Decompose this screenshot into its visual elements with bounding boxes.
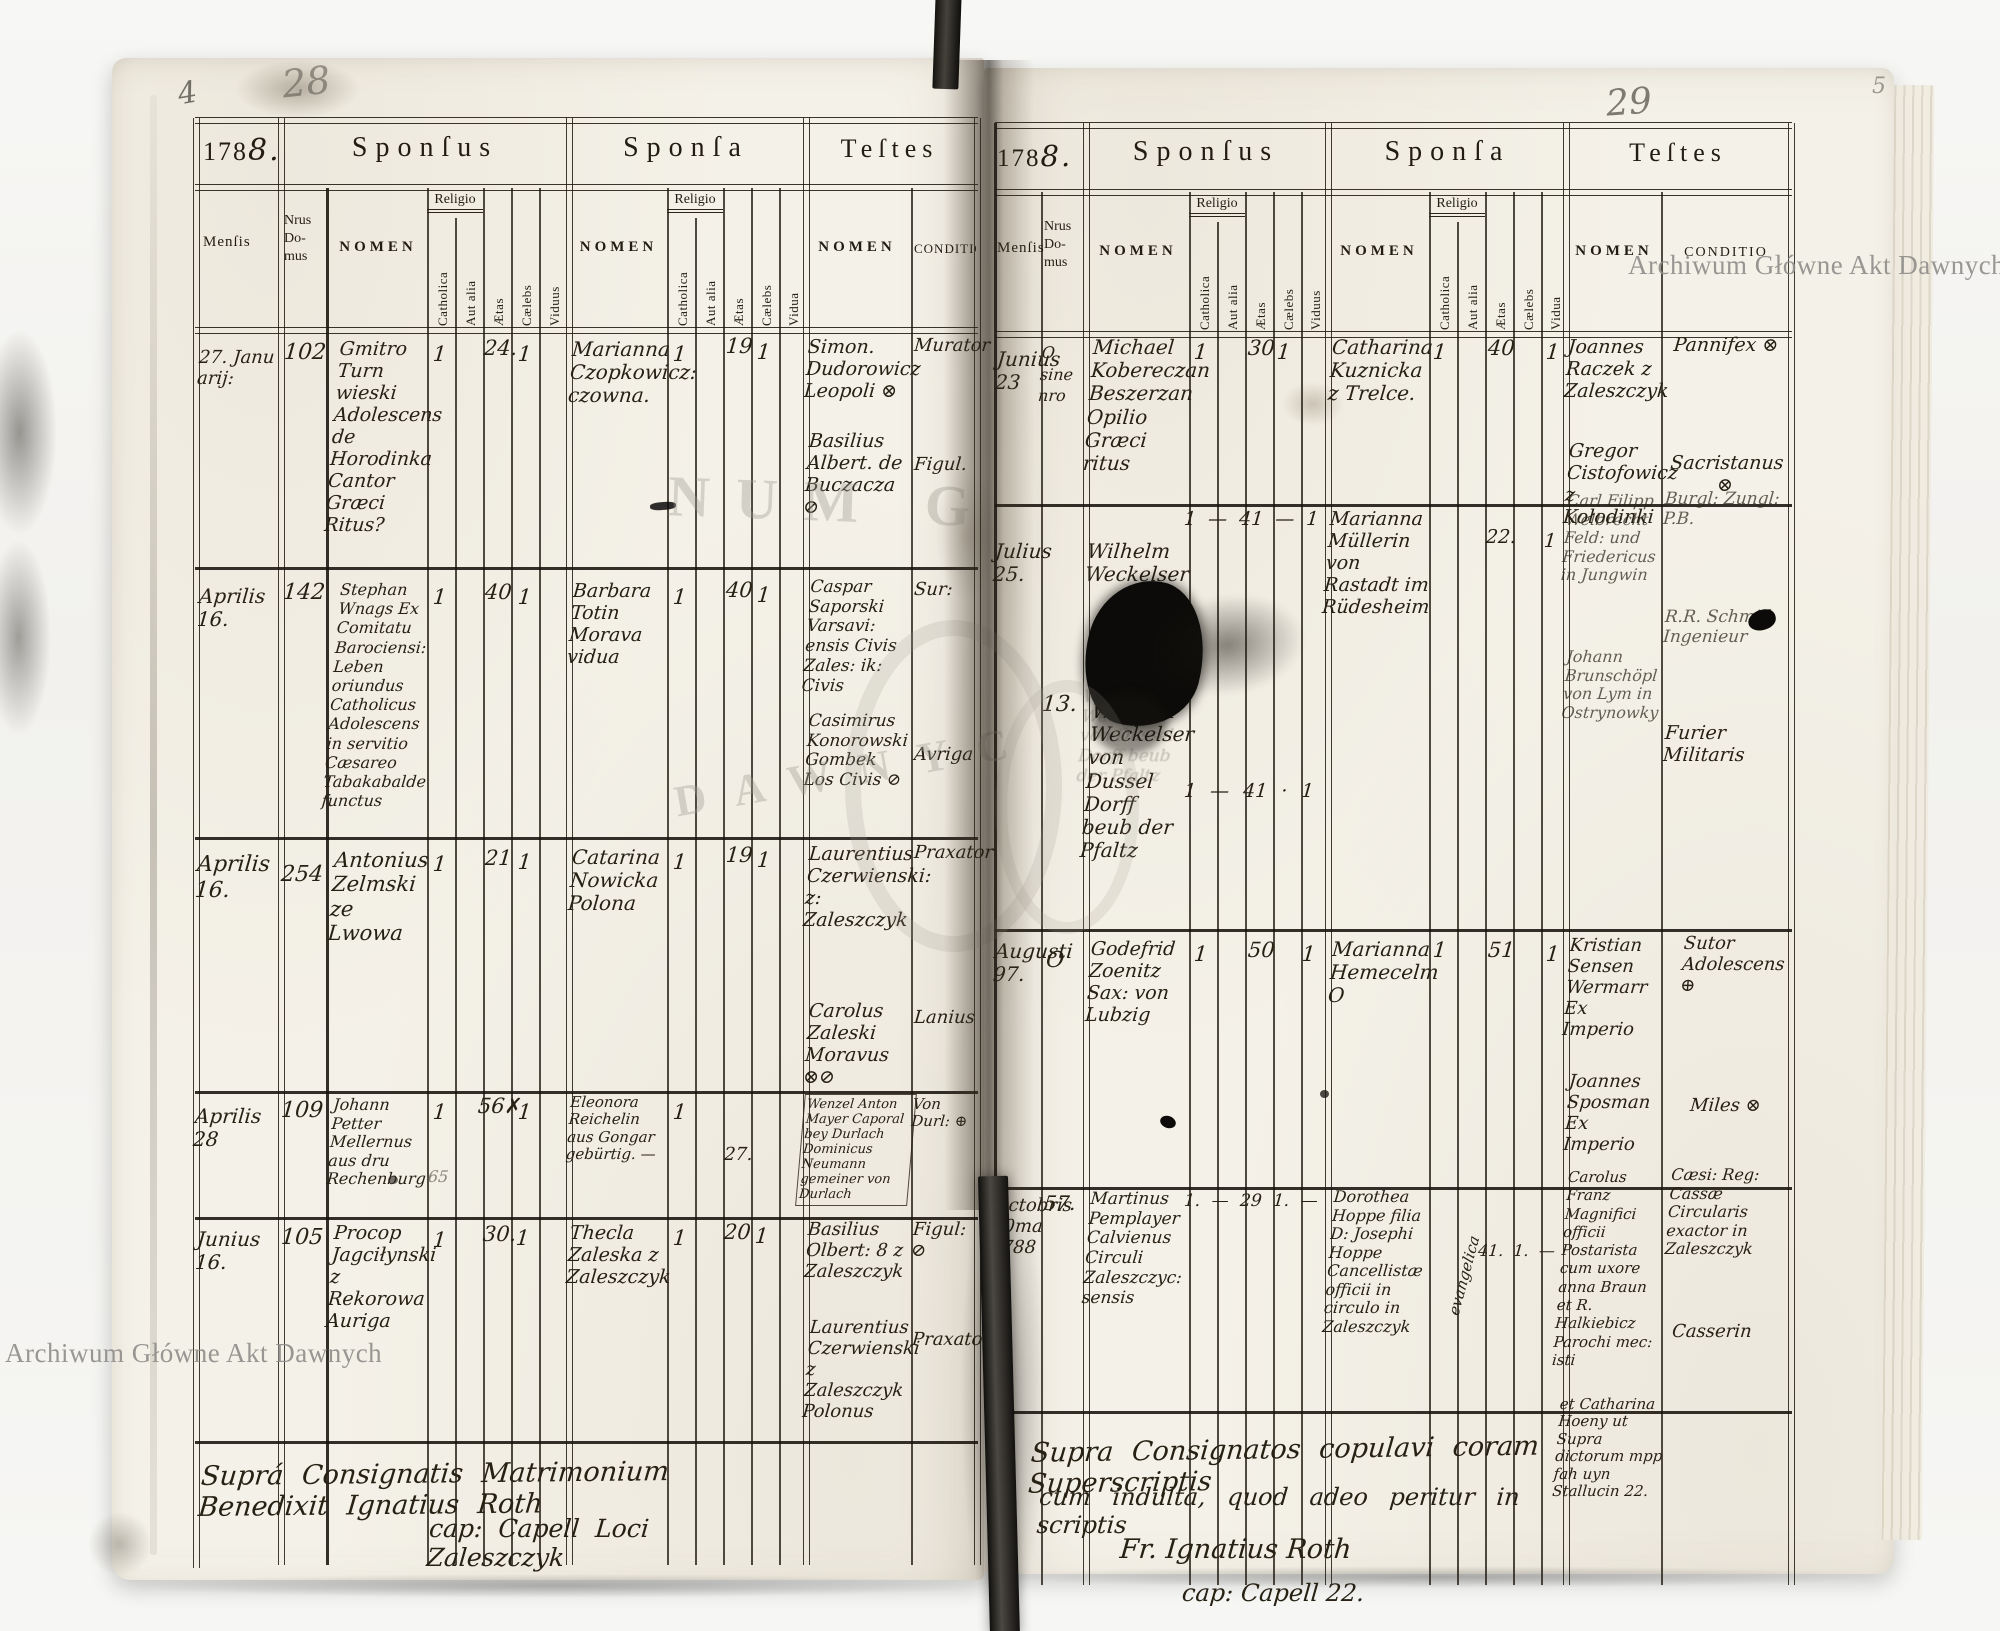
witness-condition: Von Durl: ⊕ [910,1096,977,1131]
sponsa-name: Eleonora Reichelin aus Gongar gebürtig. … [565,1094,671,1164]
sponsus-name: Wilhelm Weckelser [1084,540,1188,586]
sponsa-name: Dorothea Hoppe filia D: Josephi Hoppe Ca… [1322,1188,1435,1336]
sponsus-age: 56✗ [477,1094,523,1118]
sponsus-catholica-mark: 1 [432,1100,448,1124]
column-header-house-number: Nrus Do- mus [284,212,326,267]
witness-condition: Praxator [913,843,979,864]
sponsa-age: 40 [1487,336,1516,360]
witness-condition: Avriga [913,745,979,766]
sponsa-vidua-mark: 1 [1545,340,1561,364]
column-group-sponsus: Sponſus [300,132,550,164]
sponsus-catholica-mark: 1 [1193,942,1209,966]
witness-condition: Burgl: Zungl: P.B. [1662,490,1787,529]
register-footer-blessing: cap: Capell Loci Zaleszczyk [425,1514,790,1572]
column-header-nomen-sponsus: NOMEN [1087,243,1189,260]
sponsus-name: Godefrid Zoenitz Sax: von Lubzig [1084,938,1190,1026]
sponsus-age: 21 [484,846,513,870]
entry-mensis: Aprilis 28 [192,1105,278,1151]
column-header-catholica: Catholica [1437,276,1453,330]
witness-condition: Cæsi: Reg: Cassæ Circularis exactor in Z… [1664,1166,1792,1259]
sponsus-caelebs-mark: 1 [1276,340,1292,364]
sponsus-catholica-mark: 1 [1193,340,1209,364]
sponsa-caelebs-mark: 1 [756,848,772,872]
column-header-aetas: Ætas [1253,302,1269,330]
column-header-nomen-sponsa: NOMEN [570,239,667,256]
sponsa-name: Marianna Czopkowicz: czowna. [567,338,669,408]
sponsus-age: 30 [1247,336,1276,360]
year-label: 1788. [203,133,281,168]
column-header-aut-alia: Aut alia [463,280,479,326]
sponsus-name: Michael Kobereczan Beszerzan Opilio Græc… [1082,336,1192,475]
column-header-aetas: Ætas [491,298,507,326]
witness-names: Wenzel Anton Mayer Caporal bey Durlach D… [795,1094,917,1206]
column-header-nomen-sponsa: NOMEN [1329,243,1429,260]
column-header-religio-sponsa: Religio [667,192,723,213]
sponsus-name: Wilhelm Weckelser von Dussel Dorff beub … [1079,700,1197,862]
year-handwritten-digit: 8. [1041,139,1073,173]
page-number-right: 29 [1605,80,1654,124]
sponsus-name: Procop Jagciłynski z Rekorowa Auriga [325,1222,430,1332]
sponsa-age: 20 [723,1220,752,1244]
year-printed: 178 [203,137,248,166]
register-footer-signature: Fr. Ignatius Roth [1119,1534,1422,1565]
edge-smudge [0,540,51,735]
sponsa-name: Marianna Müllerin von Rastadt im Rüdeshe… [1321,508,1443,618]
sponsa-catholica-mark: 1 [672,342,688,366]
witness-condition: Sur: [913,580,979,601]
witness-condition: Miles ⊗ [1689,1096,1791,1117]
year-handwritten-digit: 8. [248,133,281,168]
sponsus-name: Johann Petter Mellernus aus dru Rechenbu… [326,1096,430,1189]
sponsa-caelebs-mark: 1 [1543,530,1557,552]
witness-condition: Figul: ⊘ [910,1220,978,1262]
sponsa-name: Catharina Kuznicka z Trelce. [1327,336,1431,406]
sponsa-catholica-mark: 1 [672,1226,688,1250]
witness-names: Laurentius Czerwienski z Zaleszczyk Polo… [801,1318,910,1422]
column-header-catholica: Catholica [675,272,691,326]
sponsus-name: Gmitro Turn wieski Adolescens de Horodin… [323,338,432,536]
sponsus-caelebs-mark: 1 [517,850,533,874]
sponsus-caelebs-mark: 1 [515,1226,531,1250]
sponsus-caelebs-mark: 1 [517,585,533,609]
sponsus-caelebs-mark: 1 [517,342,533,366]
page-number-left: 28 [280,58,333,107]
entry-mensis: 27. Janu arij: [196,348,280,390]
column-header-nomen-sponsus: NOMEN [330,239,426,256]
witness-condition: Sutor Adolescens ⊕ [1679,934,1789,997]
sponsa-age: 22. [1485,526,1517,548]
column-group-testes: Teſtes [812,134,967,164]
entry-mensis: Julius 25. [992,540,1044,586]
witness-condition: Pannifex ⊗ [1665,334,1787,356]
entry-house-number: 102 [283,340,327,366]
witness-names: Carolus Franz Magnifici officii Postaris… [1551,1168,1669,1369]
archive-watermark-bottom: Archiwum Główne Akt Dawnych [5,1338,382,1369]
sponsa-caelebs-mark: 1 [756,340,772,364]
column-header-catholica: Catholica [1197,276,1213,330]
entry-mensis: Aprilis 16. [194,852,278,903]
sponsa-name: Thecla Zaleska z Zaleszczyk [565,1222,671,1288]
year-label: 1788. [997,139,1072,173]
sponsa-caelebs-mark: 1 [754,1224,770,1248]
entry-house-number: O sine nro [1037,342,1085,407]
column-header-religio-sponsus: Religio [427,192,483,213]
register-scan: NUM G DAWNYC 1788. Sponſus Sponſa Teſtes… [0,0,2000,1631]
edge-smudge [0,330,57,535]
column-header-mensis: Menſis [203,234,251,251]
witness-names: Simon. Dudorowicz Leopoli ⊗ [803,336,909,402]
column-header-conditio: CONDITIO [914,241,976,257]
column-header-nomen-testes: NOMEN [805,239,909,256]
sponsus-marks: 1. — 29 1. — [1183,1192,1320,1212]
sponsus-catholica-mark: 1 [432,852,448,876]
sponsa-name: Barbara Totin Morava vidua [566,580,669,668]
entry-house-number: 254 [280,862,324,888]
sponsa-catholica-mark: 1 [672,585,688,609]
witness-condition: Furier Militaris [1662,722,1788,766]
column-header-aut-alia: Aut alia [1465,284,1481,330]
witness-names: Basilius Albert. de Buczacza ⊘ [802,430,910,518]
column-header-viduus: Viduus [547,286,563,326]
margin-number: 5 [1872,74,1886,99]
witness-condition: Lanius [913,1008,979,1029]
column-group-sponsus: Sponſus [1085,136,1327,168]
column-header-viduus: Viduus [1308,290,1324,330]
entry-mensis: Junius 23 [994,348,1044,394]
sponsus-age: 50 [1247,938,1276,962]
witness-condition: Praxator [911,1330,977,1351]
sponsus-age: 30. [482,1222,518,1246]
witness-names: Casimirus Konorowski Gombek Los Civis ⊘ [803,712,910,791]
column-header-religio-sponsa: Religio [1429,196,1485,217]
sponsa-age: 40 [725,578,754,602]
witness-names: Laurentius Czerwienski: z: Zaleszczyk [802,843,912,931]
column-header-mensis: Menſis [997,240,1045,257]
pencil-note: 65 [427,1168,449,1187]
witness-condition: Figul. [913,455,979,476]
sponsa-catholica-mark: 1 [672,1100,688,1124]
witness-names: Carolus Zaleski Moravus ⊗⊘ [802,1000,912,1088]
column-header-house-number: Nrus Do- mus [1044,218,1084,273]
column-group-testes: Teſtes [1588,138,1768,168]
entry-house-number: 13. [1041,692,1078,718]
entry-house-number: 109 [280,1098,324,1124]
sponsa-catholica-mark: 1 [1432,340,1448,364]
column-header-caelebs: Cælebs [1281,289,1297,330]
archive-watermark-top: Archiwum Główne Akt Dawnych [1628,250,2000,281]
sponsus-caelebs-mark: 1 [517,1100,533,1124]
column-header-religio-sponsus: Religio [1189,196,1245,217]
column-header-vidua: Vidua [786,293,802,327]
entry-mensis: Aprilis 16. [196,585,278,631]
sponsa-age: 27. [723,1145,753,1166]
entry-mensis: Augusti 97. [992,940,1042,986]
entry-house-number: O [1045,948,1065,974]
sponsa-age: 19 [725,334,754,358]
sponsa-catholica-mark: 1 [1432,938,1448,962]
sponsa-caelebs-mark: 1 [756,583,772,607]
entry-mensis: Junius 16. [194,1228,276,1274]
column-header-caelebs: Cælebs [759,285,775,326]
sponsa-marks: 41. 1. — [1477,1242,1574,1261]
sponsus-catholica-mark: 1 [432,585,448,609]
sponsus-age: 24. [483,336,519,360]
column-header-aut-alia: Aut alia [703,280,719,326]
witness-condition: Casserin [1671,1322,1783,1343]
sponsus-marks: 1 — 41 · 1 [1183,780,1315,802]
witness-names: Caspar Saporski Varsavi: ensis Civis Zal… [801,578,911,696]
witness-names: Johann Brunschöpl von Lym in Ostrynowky [1561,648,1662,722]
witness-condition: R.R. Schmid Ingenieur [1662,608,1787,647]
sponsus-catholica-mark: 1 [432,1228,448,1252]
column-header-caelebs: Cælebs [519,285,535,326]
year-printed: 178 [997,145,1041,172]
witness-names: Basilius Olbert: 8 z Zaleszczyk [803,1220,908,1283]
sponsa-name: Catarina Nowicka Polona [567,846,670,916]
column-header-aut-alia: Aut alia [1225,284,1241,330]
sponsa-age: 51 [1487,938,1516,962]
register-footer-signature: cap: Capell 22. [1181,1580,1473,1608]
column-group-sponsa: Sponſa [1330,136,1565,168]
sponsa-age: 19 [725,843,754,867]
column-header-vidua: Vidua [1548,297,1564,331]
sponsus-catholica-mark: 1 [432,342,448,366]
sponsus-age: 40 [484,580,513,604]
column-header-catholica: Catholica [435,272,451,326]
sponsa-catholica-mark: 1 [672,850,688,874]
witness-names: Joannes Raczek z Zaleszczyk [1563,336,1661,402]
entry-house-number: 57. [1043,1192,1077,1215]
sponsus-name: Martinus Pemplayer Calvienus Circuli Zal… [1081,1190,1191,1308]
register-footer-blessing: cum indulta, quod adeo peritur in script… [1036,1484,1556,1540]
sponsus-name: Stephan Wnags Ex Comitatu Barociensi: Le… [321,580,434,810]
witness-names: Joannes Sposman Ex Imperio [1562,1072,1664,1156]
witness-condition: Murator [913,336,979,357]
column-header-aetas: Ætas [731,298,747,326]
witness-names: Carl Filipp Welbrecht Feld: und Friederi… [1560,492,1663,585]
sponsus-name: Antonius Zelmski ze Lwowa [327,848,429,945]
column-header-aetas: Ætas [1493,302,1509,330]
sponsa-vidua-mark: 1 [1545,942,1561,966]
entry-house-number: 105 [280,1225,324,1251]
sponsa-name: Marianna Hemecelm O [1327,938,1431,1008]
witness-names: Kristian Sensen Wermarr Ex Imperio [1561,936,1665,1040]
sponsus-marks: 1 — 41 — 1 [1183,508,1310,530]
column-header-caelebs: Cælebs [1521,289,1537,330]
entry-house-number: 142 [282,580,326,606]
entry-mensis: Octobris 10ma 1788 [989,1196,1044,1259]
sponsus-viduus-mark: 1 [1301,942,1317,966]
column-group-sponsa: Sponſa [580,132,792,164]
